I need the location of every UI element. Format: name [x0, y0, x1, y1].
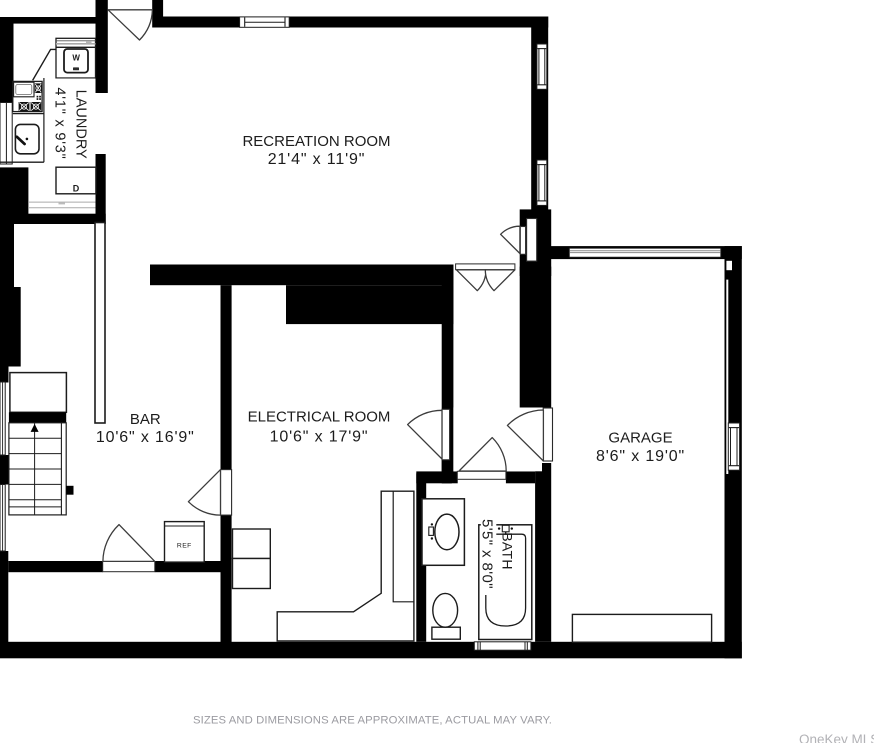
svg-text:21'4" x 11'9": 21'4" x 11'9" — [268, 151, 366, 168]
svg-text:10'6" x 17'9": 10'6" x 17'9" — [270, 429, 369, 446]
svg-text:5'5" x 8'0": 5'5" x 8'0" — [479, 519, 496, 589]
svg-text:W: W — [72, 54, 80, 63]
svg-text:LAUNDRY: LAUNDRY — [73, 90, 89, 159]
svg-text:BATH: BATH — [500, 532, 516, 570]
svg-text:BAR: BAR — [130, 411, 161, 428]
svg-text:RECREATION ROOM: RECREATION ROOM — [242, 133, 390, 150]
svg-text:4'1" x 9'3": 4'1" x 9'3" — [52, 87, 68, 159]
svg-text:REF: REF — [177, 542, 192, 549]
svg-text:10'6" x 16'9": 10'6" x 16'9" — [96, 429, 195, 446]
svg-text:GARAGE: GARAGE — [608, 429, 672, 446]
svg-text:ELECTRICAL ROOM: ELECTRICAL ROOM — [248, 409, 391, 426]
svg-text:D: D — [73, 183, 80, 193]
svg-text:OneKey MLS: OneKey MLS — [799, 732, 874, 743]
svg-text:8'6" x 19'0": 8'6" x 19'0" — [596, 448, 685, 465]
svg-text:SIZES AND DIMENSIONS ARE APPRO: SIZES AND DIMENSIONS ARE APPROXIMATE, AC… — [193, 715, 552, 727]
